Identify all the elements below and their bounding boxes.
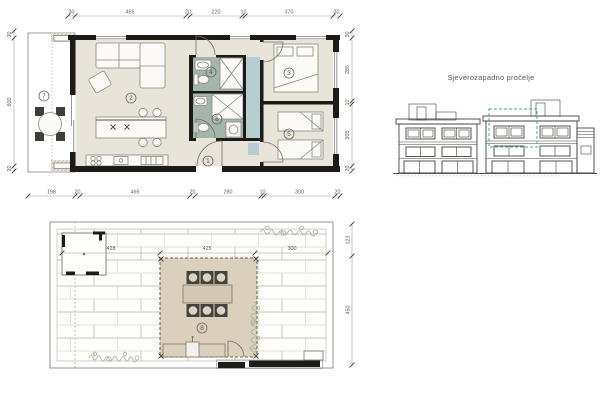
dim-label: 465 xyxy=(131,190,140,196)
elevation-right-building xyxy=(483,100,594,173)
floor-plan: 1 2 3 4 5 6 7 30 465 20 220 10 370 30 19… xyxy=(7,10,354,199)
dim-label: 600 xyxy=(7,98,13,107)
dim-label: 450 xyxy=(346,306,352,315)
room-number: 6 xyxy=(215,116,219,123)
dim-label: 123 xyxy=(346,236,352,245)
dim-label: 20 xyxy=(7,166,13,172)
dim-label: 10 xyxy=(260,190,266,196)
dim-label: 10 xyxy=(345,100,351,106)
dim-label: 20 xyxy=(75,190,81,196)
dim-label: 300 xyxy=(288,246,297,252)
room-number: 1 xyxy=(206,158,210,165)
outdoor-dining-set xyxy=(183,271,232,317)
highlighted-duct xyxy=(248,143,259,155)
terrace-area xyxy=(28,33,75,172)
dim-label: 20 xyxy=(185,10,191,16)
dim-label: 30 xyxy=(7,32,13,38)
dim-label: 300 xyxy=(295,190,304,196)
ac-unit xyxy=(304,351,323,360)
dim-label: 20 xyxy=(335,190,341,196)
elevation: Sjeverozapadno pročelje xyxy=(393,73,597,176)
architectural-drawing-sheet: 1 2 3 4 5 6 7 30 465 20 220 10 370 30 19… xyxy=(0,0,601,400)
room-badge-terrace: 7 xyxy=(39,91,49,101)
dim-label: 30 xyxy=(334,10,340,16)
dim-label: 425 xyxy=(203,246,212,252)
roof-terrace-plan: 8 428 425 300 123 450 xyxy=(50,222,354,369)
elevation-left-building xyxy=(396,104,480,173)
outdoor-sink xyxy=(186,342,199,357)
drawing-svg: 1 2 3 4 5 6 7 30 465 20 220 10 370 30 19… xyxy=(0,0,601,400)
room-number: 7 xyxy=(42,93,46,100)
dim-label: 20 xyxy=(190,190,196,196)
dim-label: 20 xyxy=(345,166,351,172)
dim-label: 280 xyxy=(224,190,233,196)
terrace-table xyxy=(35,107,65,141)
dim-label: 285 xyxy=(345,65,351,74)
dim-label: 465 xyxy=(126,10,135,16)
room-number: 4 xyxy=(209,69,213,76)
pergola-area: 8 xyxy=(159,257,259,359)
room-number: 3 xyxy=(287,70,291,77)
room-number: 2 xyxy=(129,95,133,102)
dim-label: 30 xyxy=(345,32,351,38)
highlighted-shaft xyxy=(246,57,260,141)
dim-label: 370 xyxy=(285,10,294,16)
room-number: 5 xyxy=(287,131,291,138)
dim-label: 428 xyxy=(107,246,116,252)
room-number: 8 xyxy=(200,325,204,332)
dim-label: 305 xyxy=(345,131,351,140)
dim-label: 10 xyxy=(241,10,247,16)
dim-label: 198 xyxy=(47,190,56,196)
elevation-title: Sjeverozapadno pročelje xyxy=(447,73,534,82)
dim-label: 30 xyxy=(69,10,75,16)
dim-label: 220 xyxy=(212,10,221,16)
